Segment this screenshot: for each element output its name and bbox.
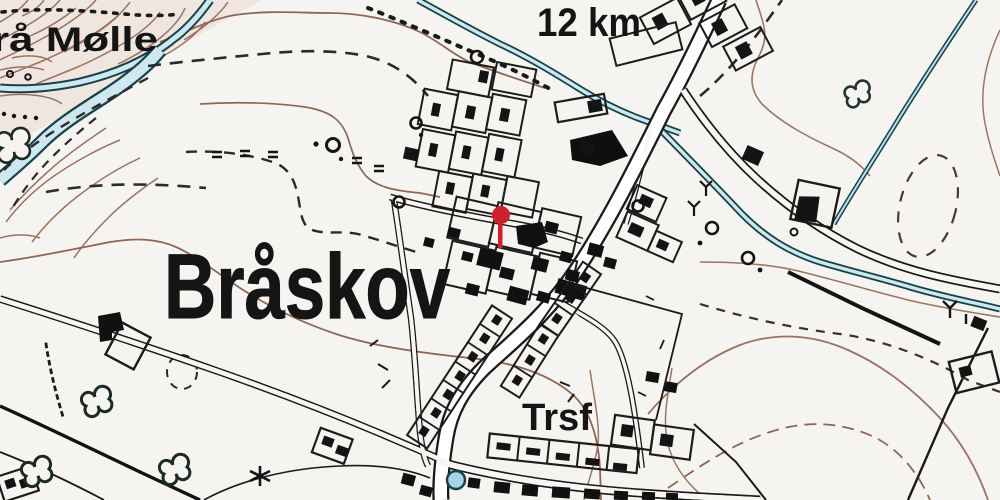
svg-text:12 km: 12 km (537, 1, 641, 45)
svg-text:rå Mølle: rå Mølle (0, 21, 158, 59)
svg-text:Bråskov: Bråskov (164, 236, 450, 338)
svg-text:Trsf: Trsf (522, 397, 592, 439)
